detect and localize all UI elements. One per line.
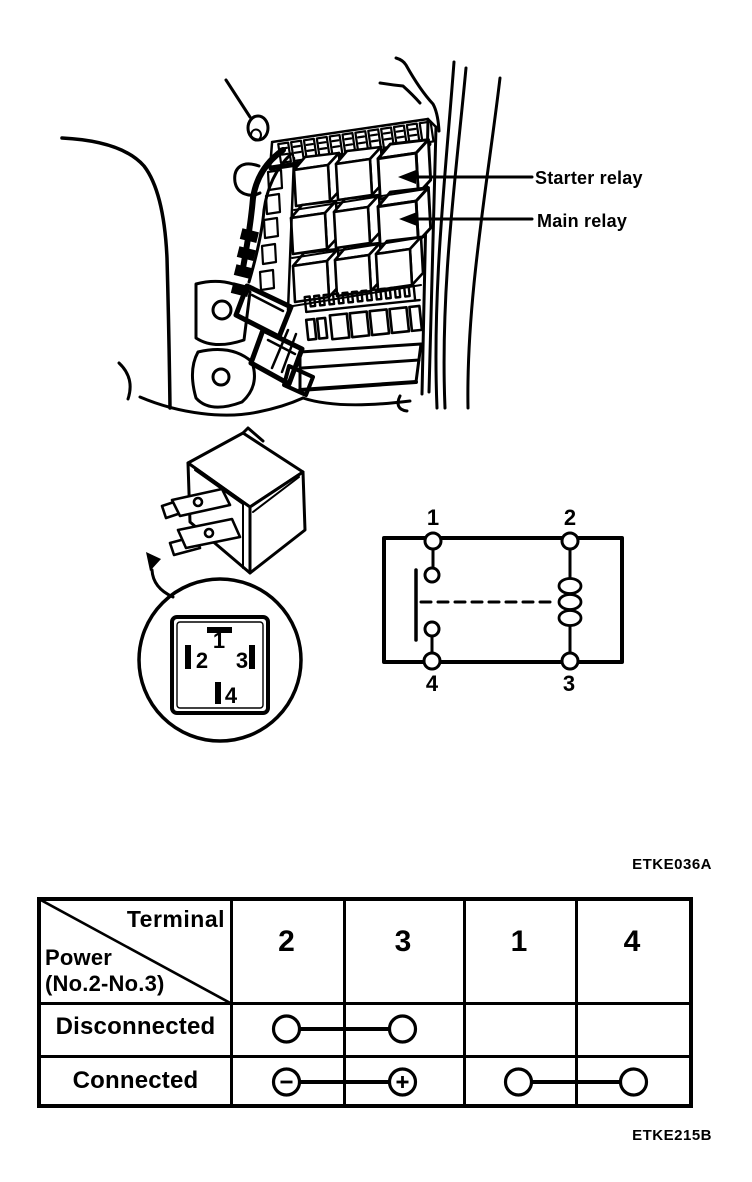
relay-pictorial xyxy=(162,433,305,573)
col-header-terminal-3: 3 xyxy=(343,925,463,959)
header-power-line1: Power xyxy=(45,945,165,971)
figure-code-top: ETKE036A xyxy=(552,856,712,873)
col-header-terminal-4: 4 xyxy=(575,925,689,959)
terminal-2-label: 2 xyxy=(564,505,576,530)
main-relay-label: Main relay xyxy=(537,211,627,232)
header-power-line2: (No.2-No.3) xyxy=(45,971,165,997)
starter-relay-label: Starter relay xyxy=(535,168,643,189)
terminal-4 xyxy=(424,653,440,669)
mounting-bracket xyxy=(192,281,254,407)
engine-bay-illustration xyxy=(0,0,752,460)
col-header-terminal-2: 2 xyxy=(230,925,343,959)
terminal-3-label: 3 xyxy=(563,671,575,696)
manual-page: Starter relay Main relay xyxy=(0,0,752,1182)
connected-2-3-link xyxy=(274,1069,416,1095)
hose-line xyxy=(468,78,500,408)
connected-1-4-link xyxy=(506,1069,647,1095)
side-fuse-column xyxy=(260,170,282,290)
continuity-symbols xyxy=(230,1002,689,1104)
pin-1-label: 1 xyxy=(213,628,225,653)
contact-lower xyxy=(425,622,439,636)
terminal-1-label: 1 xyxy=(427,505,439,530)
terminal-table: Terminal Power (No.2-No.3) 2 3 1 4 Disco… xyxy=(37,897,693,1108)
fender-curve xyxy=(62,138,170,408)
disconnected-2-3-link xyxy=(274,1016,416,1042)
magnifier-arrow xyxy=(146,552,173,597)
lower-fuse-bank xyxy=(306,306,422,342)
relay-detail-illustration: 1 2 3 4 1 2 xyxy=(0,420,752,760)
pin-2-label: 2 xyxy=(196,648,208,673)
terminal-2 xyxy=(562,533,578,549)
contact-upper xyxy=(425,568,439,582)
terminal-4-label: 4 xyxy=(426,671,439,696)
row-label-disconnected: Disconnected xyxy=(41,1013,230,1041)
terminal-3 xyxy=(562,653,578,669)
figure-code-bottom: ETKE215B xyxy=(552,1127,712,1144)
header-terminal: Terminal xyxy=(41,906,225,933)
col-header-terminal-1: 1 xyxy=(463,925,575,959)
hose-line xyxy=(444,68,466,408)
relay-circuit-diagram: 1 2 4 3 xyxy=(384,505,622,696)
pin-4-label: 4 xyxy=(225,683,238,708)
magnifier-circle: 1 2 3 4 xyxy=(139,579,301,741)
row-label-connected: Connected xyxy=(41,1067,230,1095)
terminal-1 xyxy=(425,533,441,549)
header-power: Power (No.2-No.3) xyxy=(45,945,165,997)
pin-3-label: 3 xyxy=(236,648,248,673)
